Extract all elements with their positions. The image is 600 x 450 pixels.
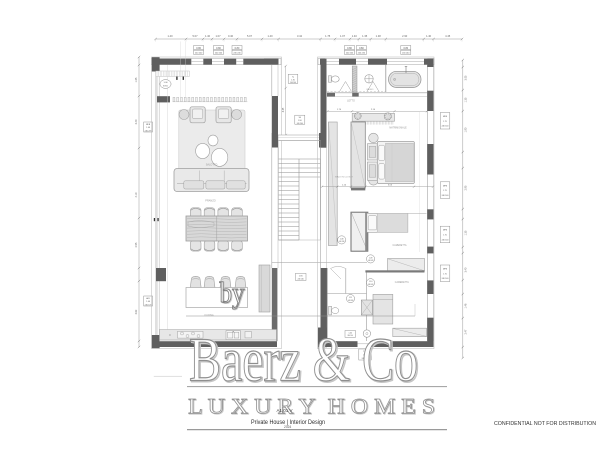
svg-text:CAMERETTA: CAMERETTA [393,244,407,247]
svg-text:2024: 2024 [284,425,291,429]
svg-text:1.46: 1.46 [146,127,150,129]
svg-text:5.07: 5.07 [192,34,198,38]
svg-text:240 140: 240 140 [442,195,449,197]
svg-text:0.80: 0.80 [359,47,364,50]
svg-text:1.35: 1.35 [465,97,468,102]
svg-text:1.35: 1.35 [362,34,368,38]
svg-text:0.80: 0.80 [235,47,240,50]
svg-text:1.40: 1.40 [426,34,432,38]
svg-text:0.80: 0.80 [347,47,352,50]
svg-text:SOGG.: SOGG. [163,86,169,88]
svg-text:1.11: 1.11 [349,297,352,299]
svg-text:1.90: 1.90 [465,127,468,132]
svg-text:1.48: 1.48 [465,303,468,308]
svg-text:240 140: 240 140 [442,126,449,128]
svg-text:240 240: 240 240 [215,53,223,55]
svg-text:1.75: 1.75 [443,273,447,275]
svg-text:0.80: 0.80 [216,47,221,50]
svg-text:1.40: 1.40 [352,34,358,38]
svg-text:3.42: 3.42 [297,34,303,38]
svg-text:1.46: 1.46 [146,301,150,303]
svg-text:PRANZO: PRANZO [205,200,215,203]
svg-text:4.45: 4.45 [283,107,285,112]
svg-text:1.40: 1.40 [267,34,273,38]
svg-text:240 240: 240 240 [358,53,366,55]
svg-text:140 140: 140 140 [290,82,296,84]
svg-text:2.95: 2.95 [465,185,468,190]
svg-text:1.08: 1.08 [340,238,344,240]
svg-text:240 240: 240 240 [233,53,241,55]
svg-text:140 240: 140 240 [368,284,374,286]
svg-text:4.10: 4.10 [135,192,138,197]
svg-text:1.48: 1.48 [376,34,382,38]
svg-text:MATRIMONIALE: MATRIMONIALE [389,126,407,129]
svg-text:A1.01 V: A1.01 V [276,408,292,413]
svg-text:CAMERETTA: CAMERETTA [395,281,409,284]
svg-text:0.80: 0.80 [403,47,408,50]
svg-text:2.47: 2.47 [465,329,468,334]
svg-text:LETTO: LETTO [347,99,355,102]
svg-text:1.40: 1.40 [205,34,211,38]
svg-text:WALK IN CLOSET: WALK IN CLOSET [335,175,354,178]
svg-text:by: by [220,277,245,310]
svg-text:3.62: 3.62 [135,309,138,314]
svg-text:240 140: 240 140 [442,239,449,241]
svg-text:1.75: 1.75 [443,235,447,237]
svg-text:A05: A05 [146,297,149,300]
svg-text:240 170: 240 170 [145,304,152,306]
svg-text:≡: ≡ [169,333,171,337]
svg-text:S0: S0 [299,117,301,119]
svg-text:4.45: 4.45 [445,34,451,38]
svg-text:Baerz & Co: Baerz & Co [189,327,418,395]
svg-text:1.35: 1.35 [465,230,468,235]
svg-text:2.90: 2.90 [402,34,408,38]
svg-text:5.07: 5.07 [247,34,253,38]
svg-text:CUCINA: CUCINA [204,314,214,317]
svg-text:240 270: 240 270 [145,130,152,132]
svg-text:3.05: 3.05 [465,75,468,80]
svg-text:240 240: 240 240 [195,53,203,55]
svg-text:140 240: 140 240 [339,241,345,243]
svg-text:1.40: 1.40 [167,34,173,38]
svg-text:CONFIDENTIAL NOT FOR DISTRIBUT: CONFIDENTIAL NOT FOR DISTRIBUTION [494,421,596,427]
svg-text:240 240: 240 240 [402,53,410,55]
svg-text:240 240: 240 240 [346,53,354,55]
svg-text:1.75: 1.75 [443,190,447,192]
svg-text:1.07: 1.07 [215,34,221,38]
svg-text:BAGNO: BAGNO [367,88,374,91]
svg-text:240 240: 240 240 [297,123,303,125]
svg-text:140 240: 140 240 [348,300,354,302]
svg-text:140 240: 140 240 [368,260,374,262]
svg-text:1.09: 1.09 [369,257,373,259]
svg-text:1.75: 1.75 [325,34,331,38]
svg-text:3.40: 3.40 [465,267,468,272]
svg-text:0.80: 0.80 [196,47,201,50]
svg-text:240 140: 240 140 [442,278,449,280]
svg-text:L U X U R Y H O M E S: L U X U R Y H O M E S [188,394,435,419]
svg-text:2.95: 2.95 [135,242,138,247]
svg-text:1.05: 1.05 [135,77,138,82]
svg-text:1.10: 1.10 [369,281,373,283]
svg-text:SALOTTO: SALOTTO [206,164,218,167]
svg-text:3.40: 3.40 [135,119,138,124]
svg-text:1.75: 1.75 [443,121,447,123]
svg-text:1.07: 1.07 [340,34,346,38]
svg-text:0.40: 0.40 [228,34,234,38]
svg-text:240 140: 240 140 [298,279,304,281]
